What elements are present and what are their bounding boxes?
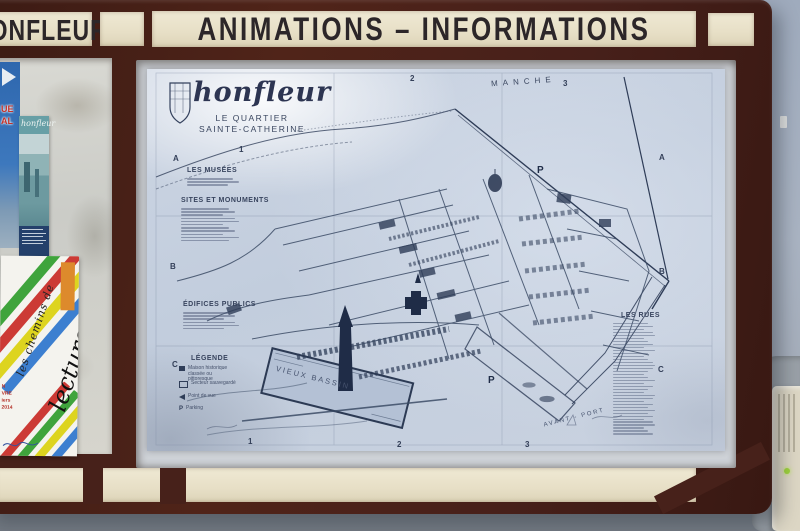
rues-list-lines: [613, 323, 657, 436]
honfleur-brochure-poster: honfleur: [19, 116, 49, 258]
grid-col-label: 2: [410, 74, 414, 83]
brochure-footer-text-lines: [19, 226, 49, 258]
header-panel-honfleur: HONFLEUR: [0, 12, 92, 46]
wall-sticker: [780, 116, 787, 128]
blue-poster-text-fragment: AL: [1, 116, 14, 126]
musees-list-lines: [187, 178, 245, 188]
map-title: honfleur: [193, 77, 331, 108]
legend-label: Parking: [186, 406, 234, 412]
grid-row-label: A: [173, 154, 179, 163]
grid-col-label: 2: [397, 440, 401, 449]
legend-label: Point de vue: [188, 394, 236, 400]
legend-viewpoint-symbol: [179, 394, 185, 400]
legend-label: Secteur sauvegardé: [191, 381, 239, 387]
grid-row-label: C: [172, 360, 178, 369]
intercom-speaker-slots: [778, 394, 798, 452]
frame-divider: [160, 466, 186, 504]
section-heading-rues: LES RUES: [621, 312, 660, 319]
intercom-led: [784, 468, 790, 474]
animations-informations-sign-text: ANIMATIONS – INFORMATIONS: [198, 10, 651, 49]
header-panel-spacer: [100, 12, 144, 46]
frame-divider: [83, 466, 103, 504]
map-subtitle-line2: SAINTE-CATHERINE: [180, 124, 324, 134]
section-heading-edifices: ÉDIFICES PUBLICS: [183, 301, 256, 308]
section-heading-legende: LÉGENDE: [191, 355, 228, 362]
section-heading-musees: LES MUSÉES: [187, 167, 237, 174]
blue-poster-text-fragment: UE: [1, 104, 14, 114]
legend-item: Point de vue: [179, 394, 236, 400]
bottom-cream-band: [0, 468, 696, 502]
detail-line: 2014: [1, 405, 31, 412]
map-subtitle-line1: LE QUARTIER: [187, 113, 317, 123]
handwritten-scribble: [1, 438, 41, 452]
legend-item: P Parking: [179, 406, 234, 412]
header-panel-main: ANIMATIONS – INFORMATIONS: [152, 11, 696, 47]
legend-protected-area-symbol: [179, 381, 188, 388]
section-heading-sites: SITES ET MONUMENTS: [181, 197, 269, 204]
grid-col-label: 1: [239, 145, 243, 154]
legend-parking-symbol: P: [179, 406, 183, 412]
grid-row-label: B: [659, 267, 665, 276]
legend-item: Secteur sauvegardé: [179, 381, 239, 388]
sites-list-lines: [181, 208, 241, 243]
parking-mark: P: [488, 375, 495, 386]
grid-row-label: B: [170, 262, 176, 271]
sailboat-icon: [2, 68, 16, 86]
avant-port-quays: [465, 313, 587, 421]
brochure-title: honfleur: [21, 119, 55, 128]
grid-col-label: 3: [525, 440, 529, 449]
lecture-poster: les chemins de lecture N VRE iers 2014: [0, 256, 79, 457]
brochure-photo: [19, 134, 49, 226]
town-map-paper: honfleur LE QUARTIER SAINTE-CATHERINE LE…: [147, 69, 725, 451]
legend-historic-house-symbol: [179, 366, 185, 371]
grid-col-label: 1: [248, 437, 252, 446]
header-panel-end: [708, 13, 754, 46]
lecture-poster-details: N VRE iers 2014: [1, 384, 31, 412]
edifices-list-lines: [183, 312, 241, 331]
grid-row-label: A: [659, 153, 665, 162]
honfleur-sign-text: HONFLEUR: [0, 14, 108, 48]
lieutenance-building: [488, 169, 502, 192]
poster-orange-bar: [60, 262, 75, 310]
grid-row-label: C: [658, 365, 664, 374]
parking-mark: P: [537, 165, 544, 176]
intercom-box: [772, 386, 800, 531]
grid-col-label: 3: [563, 79, 567, 88]
blue-event-poster: UE AL: [0, 62, 20, 248]
photo-scene: HONFLEUR ANIMATIONS – INFORMATIONS UE AL…: [0, 0, 800, 531]
